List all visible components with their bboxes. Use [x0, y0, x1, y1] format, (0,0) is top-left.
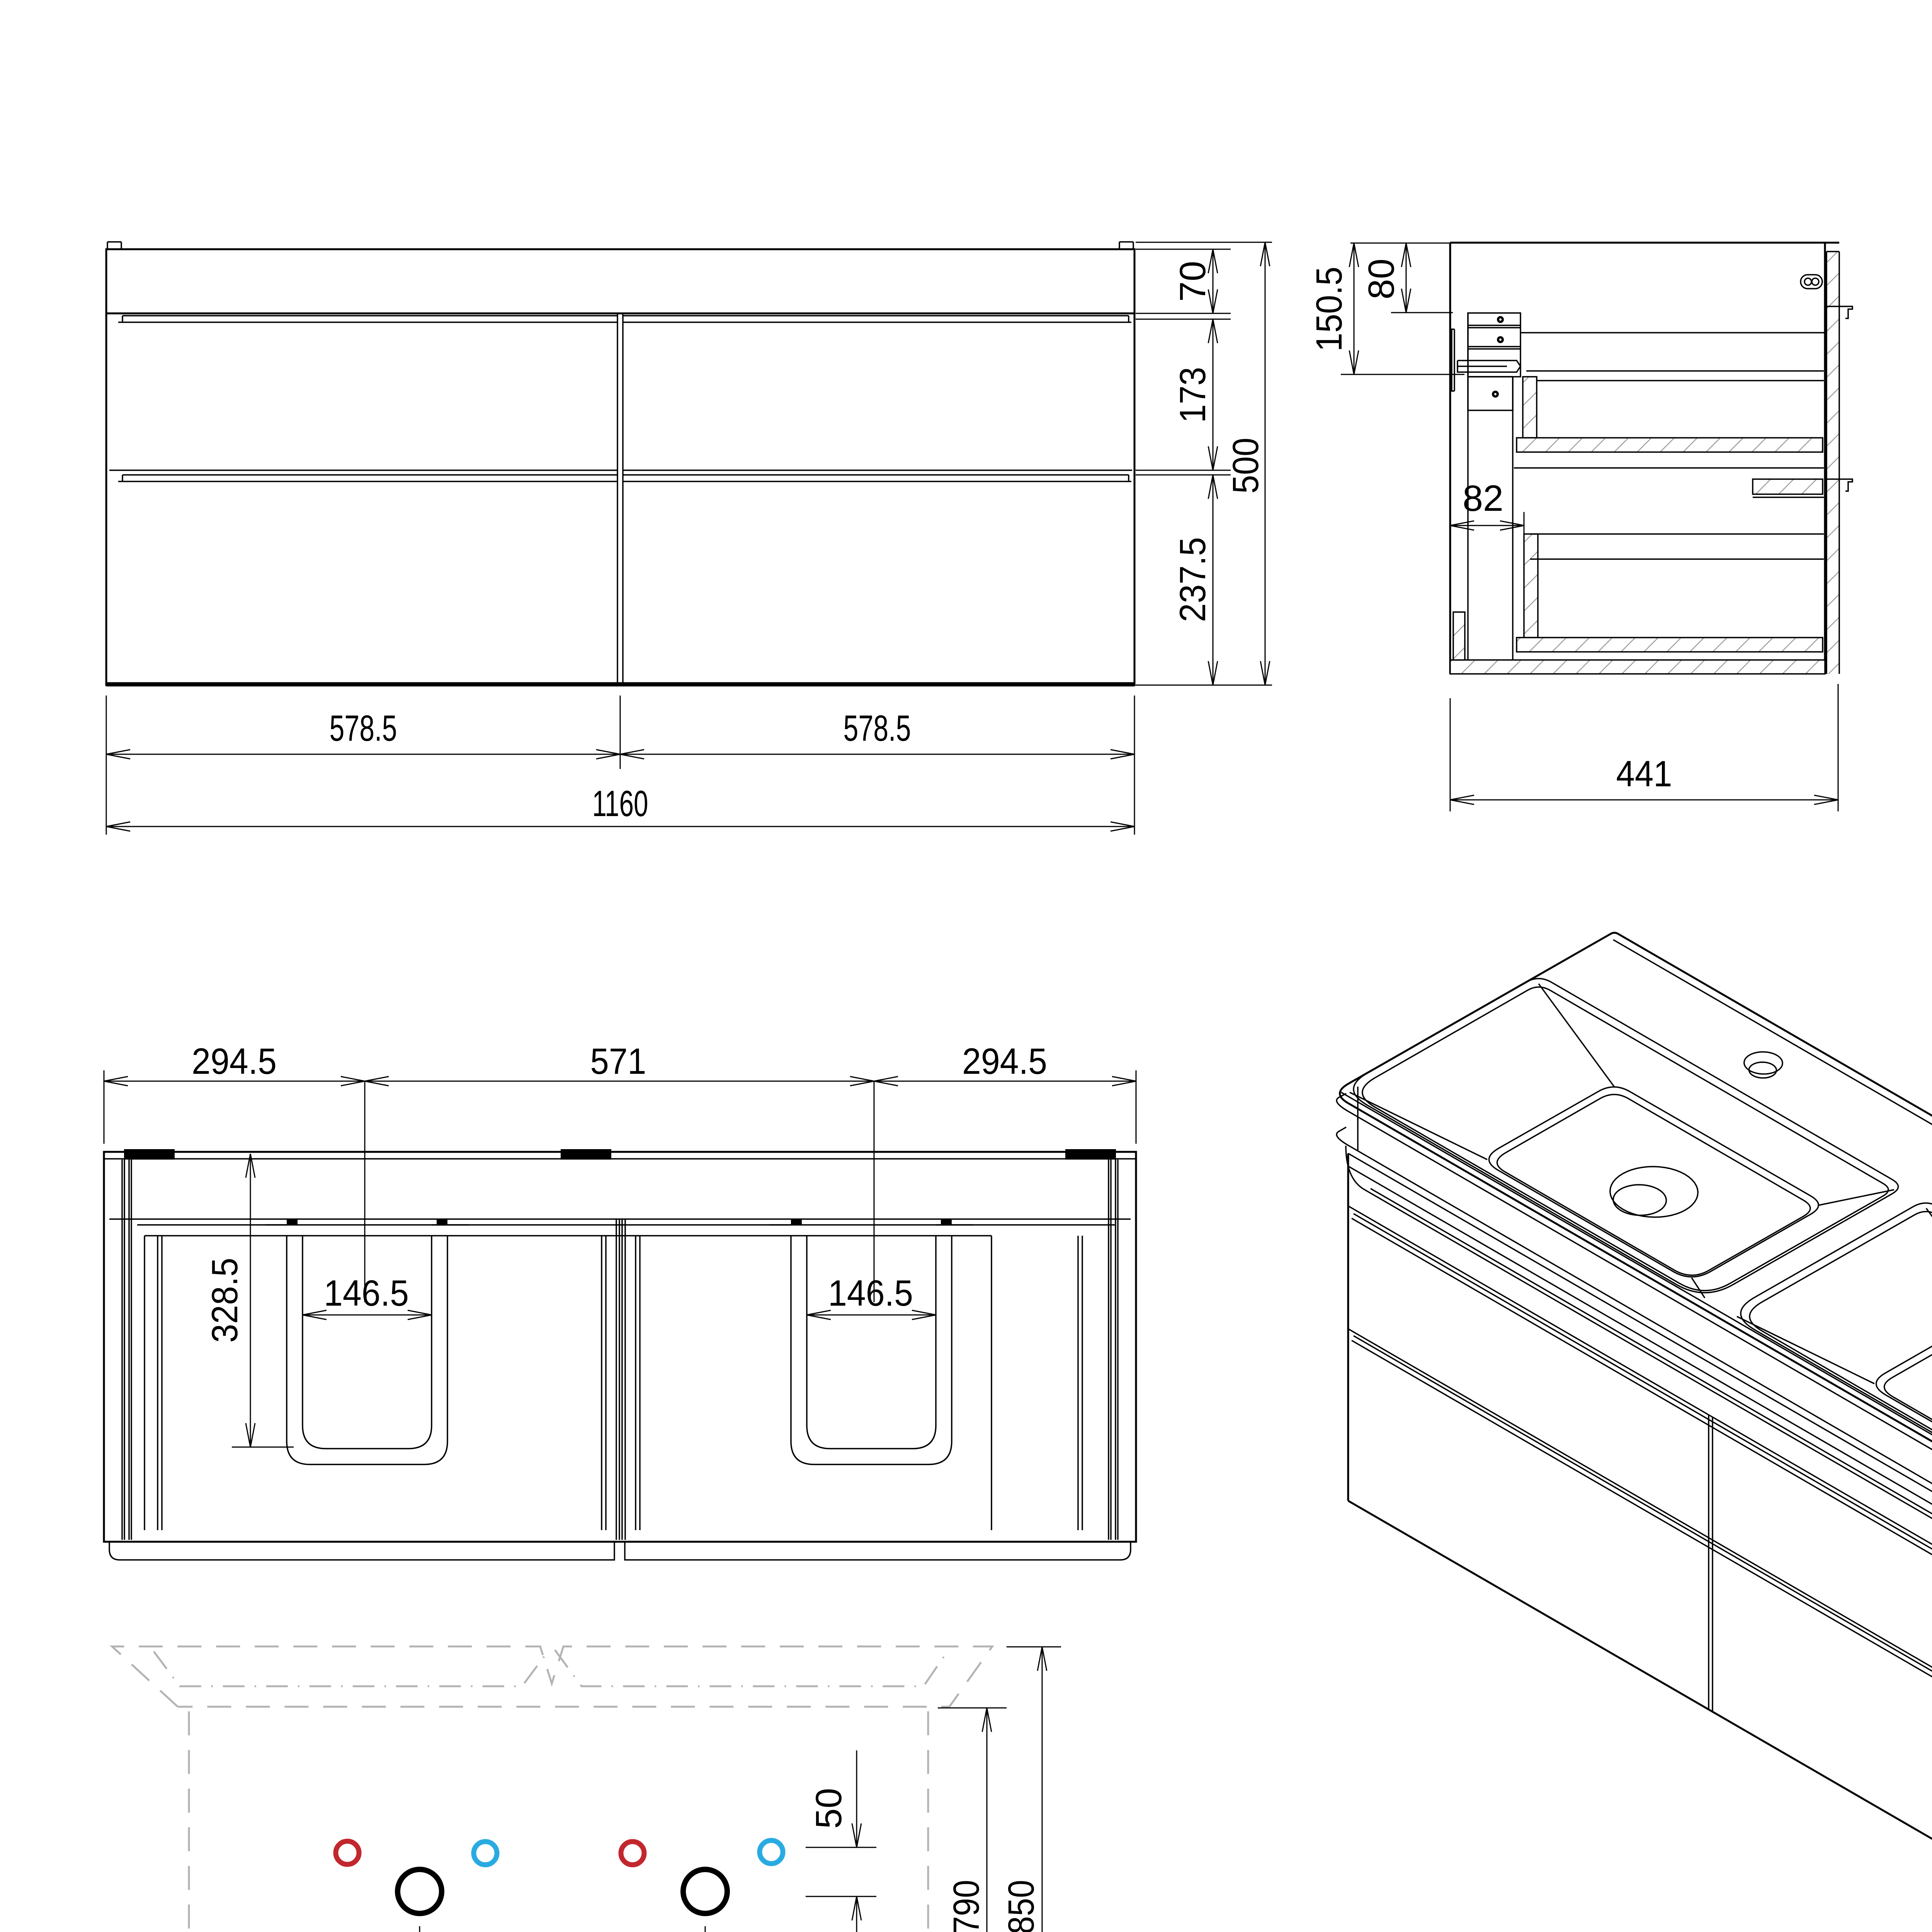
svg-text:441: 441 [1616, 753, 1672, 794]
svg-text:328.5: 328.5 [204, 1258, 245, 1343]
svg-text:80: 80 [1361, 259, 1402, 299]
svg-text:82: 82 [1463, 478, 1503, 519]
svg-text:237.5: 237.5 [1172, 537, 1213, 622]
svg-text:~850: ~850 [1001, 1880, 1042, 1932]
svg-text:146.5: 146.5 [828, 1273, 913, 1314]
svg-text:578.5: 578.5 [330, 708, 397, 749]
svg-text:50: 50 [808, 1788, 849, 1829]
svg-text:146.5: 146.5 [324, 1273, 409, 1314]
svg-text:500: 500 [1225, 438, 1266, 494]
svg-text:294.5: 294.5 [962, 1041, 1047, 1082]
svg-text:571: 571 [590, 1041, 646, 1082]
svg-text:1160: 1160 [592, 783, 648, 824]
svg-text:~790: ~790 [946, 1880, 987, 1932]
svg-text:294.5: 294.5 [192, 1041, 277, 1082]
svg-text:150.5: 150.5 [1309, 267, 1350, 352]
svg-text:70: 70 [1172, 261, 1213, 302]
svg-text:578.5: 578.5 [844, 708, 911, 749]
svg-text:173: 173 [1172, 367, 1213, 423]
